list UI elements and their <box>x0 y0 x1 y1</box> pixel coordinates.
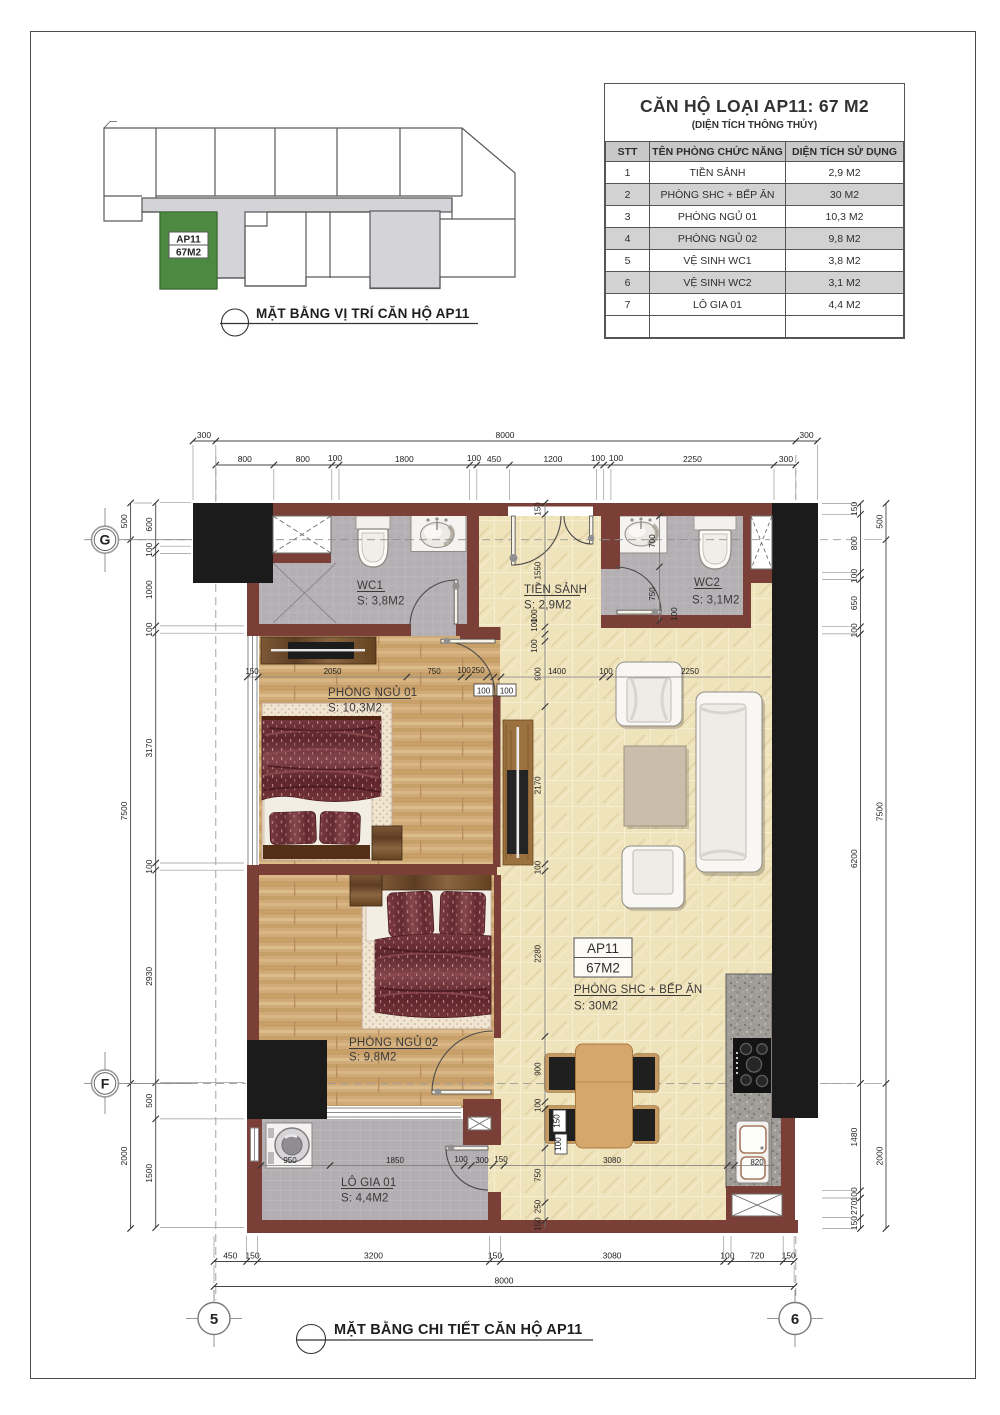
svg-text:AP11: AP11 <box>176 235 201 246</box>
svg-text:TIỀN SẢNH: TIỀN SẢNH <box>524 583 587 596</box>
svg-text:8000: 8000 <box>495 1276 514 1286</box>
svg-text:750: 750 <box>534 1168 543 1182</box>
svg-text:100: 100 <box>530 639 539 653</box>
svg-text:S: 2,9M2: S: 2,9M2 <box>524 600 572 612</box>
svg-text:600: 600 <box>144 517 154 531</box>
svg-text:S: 9,8M2: S: 9,8M2 <box>349 1052 397 1064</box>
svg-text:300: 300 <box>779 454 793 464</box>
svg-text:500: 500 <box>875 514 885 528</box>
svg-text:150: 150 <box>245 667 259 676</box>
svg-text:1850: 1850 <box>386 1156 404 1165</box>
svg-text:100: 100 <box>591 453 605 463</box>
svg-text:100: 100 <box>720 1251 734 1261</box>
svg-text:1000: 1000 <box>144 580 154 599</box>
svg-text:LÔ GIA 01: LÔ GIA 01 <box>341 1176 397 1189</box>
svg-text:2280: 2280 <box>534 944 543 962</box>
svg-text:2250: 2250 <box>681 667 699 676</box>
svg-text:800: 800 <box>238 454 252 464</box>
svg-text:G: G <box>100 532 111 548</box>
svg-text:820: 820 <box>750 1158 764 1167</box>
svg-text:2170: 2170 <box>534 776 543 794</box>
svg-text:450: 450 <box>223 1251 237 1261</box>
svg-text:800: 800 <box>849 536 859 550</box>
svg-text:AP11: AP11 <box>587 941 619 956</box>
svg-text:F: F <box>101 1075 110 1091</box>
svg-text:900: 900 <box>534 1062 543 1076</box>
svg-text:150: 150 <box>534 1217 543 1231</box>
svg-text:MẶT BẰNG CHI TIẾT CĂN HỘ AP11: MẶT BẰNG CHI TIẾT CĂN HỘ AP11 <box>334 1320 583 1338</box>
svg-text:1800: 1800 <box>395 454 414 464</box>
svg-text:100: 100 <box>144 542 154 556</box>
svg-text:S: 3,1M2: S: 3,1M2 <box>692 595 740 607</box>
svg-text:7500: 7500 <box>875 802 885 821</box>
svg-text:500: 500 <box>144 1093 154 1107</box>
svg-text:WC2: WC2 <box>694 577 720 589</box>
svg-text:2930: 2930 <box>144 967 154 986</box>
svg-text:5: 5 <box>210 1311 218 1328</box>
svg-text:S: 10,3M2: S: 10,3M2 <box>328 703 382 715</box>
svg-text:PHÒNG NGỦ 02: PHÒNG NGỦ 02 <box>349 1036 438 1049</box>
svg-text:250: 250 <box>471 666 485 675</box>
svg-text:950: 950 <box>283 1156 297 1165</box>
svg-text:S: 30M2: S: 30M2 <box>574 1001 618 1013</box>
svg-text:800: 800 <box>296 454 310 464</box>
svg-text:500: 500 <box>119 514 129 528</box>
svg-text:8000: 8000 <box>496 430 515 440</box>
svg-text:6: 6 <box>791 1311 799 1328</box>
svg-text:700: 700 <box>648 534 657 548</box>
svg-text:270: 270 <box>849 1200 859 1214</box>
svg-text:S: 4,4M2: S: 4,4M2 <box>341 1193 389 1205</box>
svg-text:650: 650 <box>849 596 859 610</box>
svg-text:1550: 1550 <box>534 561 543 579</box>
svg-text:2050: 2050 <box>324 667 342 676</box>
svg-text:100: 100 <box>849 1187 859 1201</box>
svg-text:1400: 1400 <box>548 667 566 676</box>
svg-text:2250: 2250 <box>683 454 702 464</box>
svg-text:720: 720 <box>750 1251 764 1261</box>
svg-text:2000: 2000 <box>875 1146 885 1165</box>
svg-text:WC1: WC1 <box>357 580 383 592</box>
svg-text:100: 100 <box>670 607 679 621</box>
svg-text:100: 100 <box>609 453 623 463</box>
svg-text:2000: 2000 <box>119 1146 129 1165</box>
svg-text:100: 100 <box>554 1137 563 1151</box>
svg-text:7500: 7500 <box>119 801 129 820</box>
svg-text:300: 300 <box>799 430 813 440</box>
svg-text:750: 750 <box>427 667 441 676</box>
svg-text:150: 150 <box>494 1155 508 1164</box>
svg-text:100: 100 <box>849 623 859 637</box>
svg-text:300: 300 <box>475 1156 489 1165</box>
svg-text:67M2: 67M2 <box>586 961 620 976</box>
svg-text:67M2: 67M2 <box>176 248 201 259</box>
svg-text:100: 100 <box>467 453 481 463</box>
svg-text:450: 450 <box>487 454 501 464</box>
svg-text:3170: 3170 <box>144 738 154 757</box>
svg-text:100: 100 <box>454 1155 468 1164</box>
svg-text:3080: 3080 <box>603 1251 622 1261</box>
svg-text:300: 300 <box>197 430 211 440</box>
svg-text:1480: 1480 <box>849 1127 859 1146</box>
svg-text:3080: 3080 <box>603 1156 621 1165</box>
svg-text:PHÒNG NGỦ 01: PHÒNG NGỦ 01 <box>328 686 417 699</box>
svg-text:100: 100 <box>599 667 613 676</box>
svg-text:100: 100 <box>500 687 514 696</box>
svg-text:150: 150 <box>553 1114 562 1128</box>
svg-text:3200: 3200 <box>364 1251 383 1261</box>
svg-text:100: 100 <box>534 1098 543 1112</box>
svg-text:100: 100 <box>457 666 471 675</box>
svg-text:150: 150 <box>534 502 543 516</box>
svg-text:PHÒNG SHC + BẾP ĂN: PHÒNG SHC + BẾP ĂN <box>574 983 702 996</box>
svg-text:1200: 1200 <box>543 454 562 464</box>
svg-text:100: 100 <box>477 687 491 696</box>
svg-text:900: 900 <box>534 667 543 681</box>
svg-text:1500: 1500 <box>144 1164 154 1183</box>
svg-text:S: 3,8M2: S: 3,8M2 <box>357 596 405 608</box>
svg-text:MẶT BẰNG VỊ TRÍ CĂN HỘ AP11: MẶT BẰNG VỊ TRÍ CĂN HỘ AP11 <box>256 306 470 321</box>
svg-text:750: 750 <box>648 587 657 601</box>
svg-text:100: 100 <box>144 859 154 873</box>
svg-text:100: 100 <box>328 453 342 463</box>
svg-text:100: 100 <box>849 569 859 583</box>
svg-text:100: 100 <box>144 622 154 636</box>
svg-text:6200: 6200 <box>849 849 859 868</box>
svg-text:100: 100 <box>534 860 543 874</box>
svg-text:250: 250 <box>534 1199 543 1213</box>
